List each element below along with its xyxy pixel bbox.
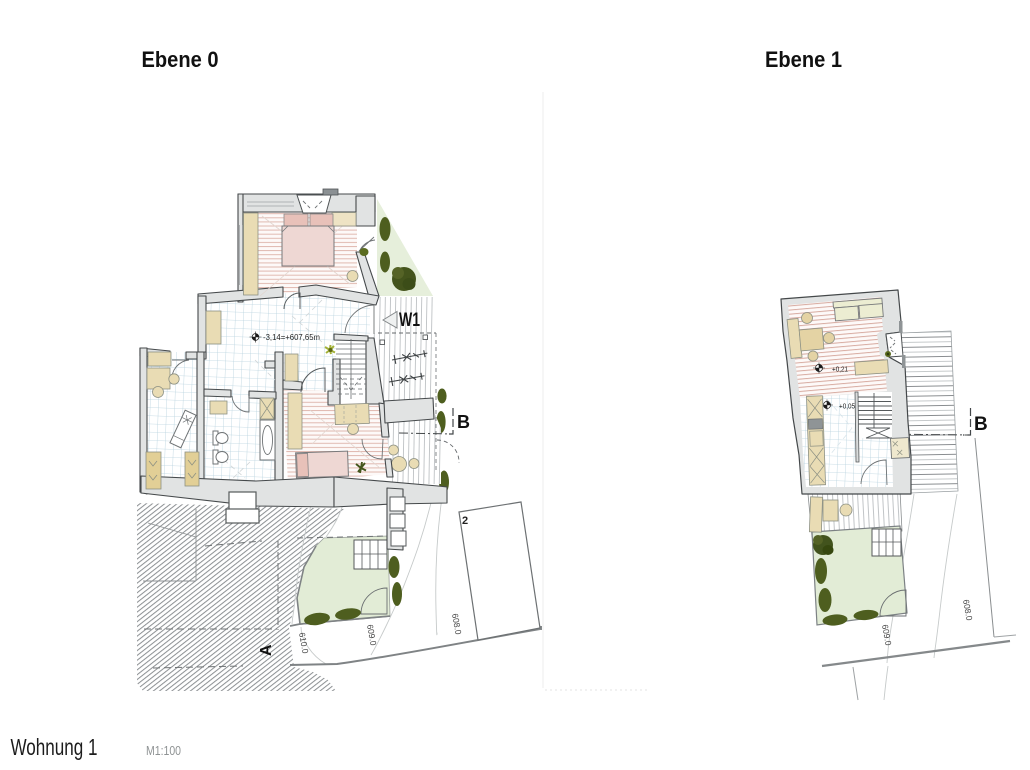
svg-text:+0,05: +0,05	[839, 402, 855, 411]
svg-text:Ebene 0: Ebene 0	[142, 47, 219, 72]
svg-text:-3,14=+607,65m: -3,14=+607,65m	[263, 333, 320, 342]
svg-text:+0,21: +0,21	[832, 365, 848, 374]
svg-text:A: A	[258, 644, 275, 656]
svg-text:B: B	[974, 414, 988, 435]
svg-text:Ebene 1: Ebene 1	[765, 47, 842, 72]
svg-text:2: 2	[462, 515, 468, 527]
svg-text:B: B	[457, 412, 470, 432]
svg-text:Wohnung 1: Wohnung 1	[11, 734, 98, 760]
svg-text:M1:100: M1:100	[146, 743, 181, 758]
svg-text:W1: W1	[399, 310, 420, 331]
